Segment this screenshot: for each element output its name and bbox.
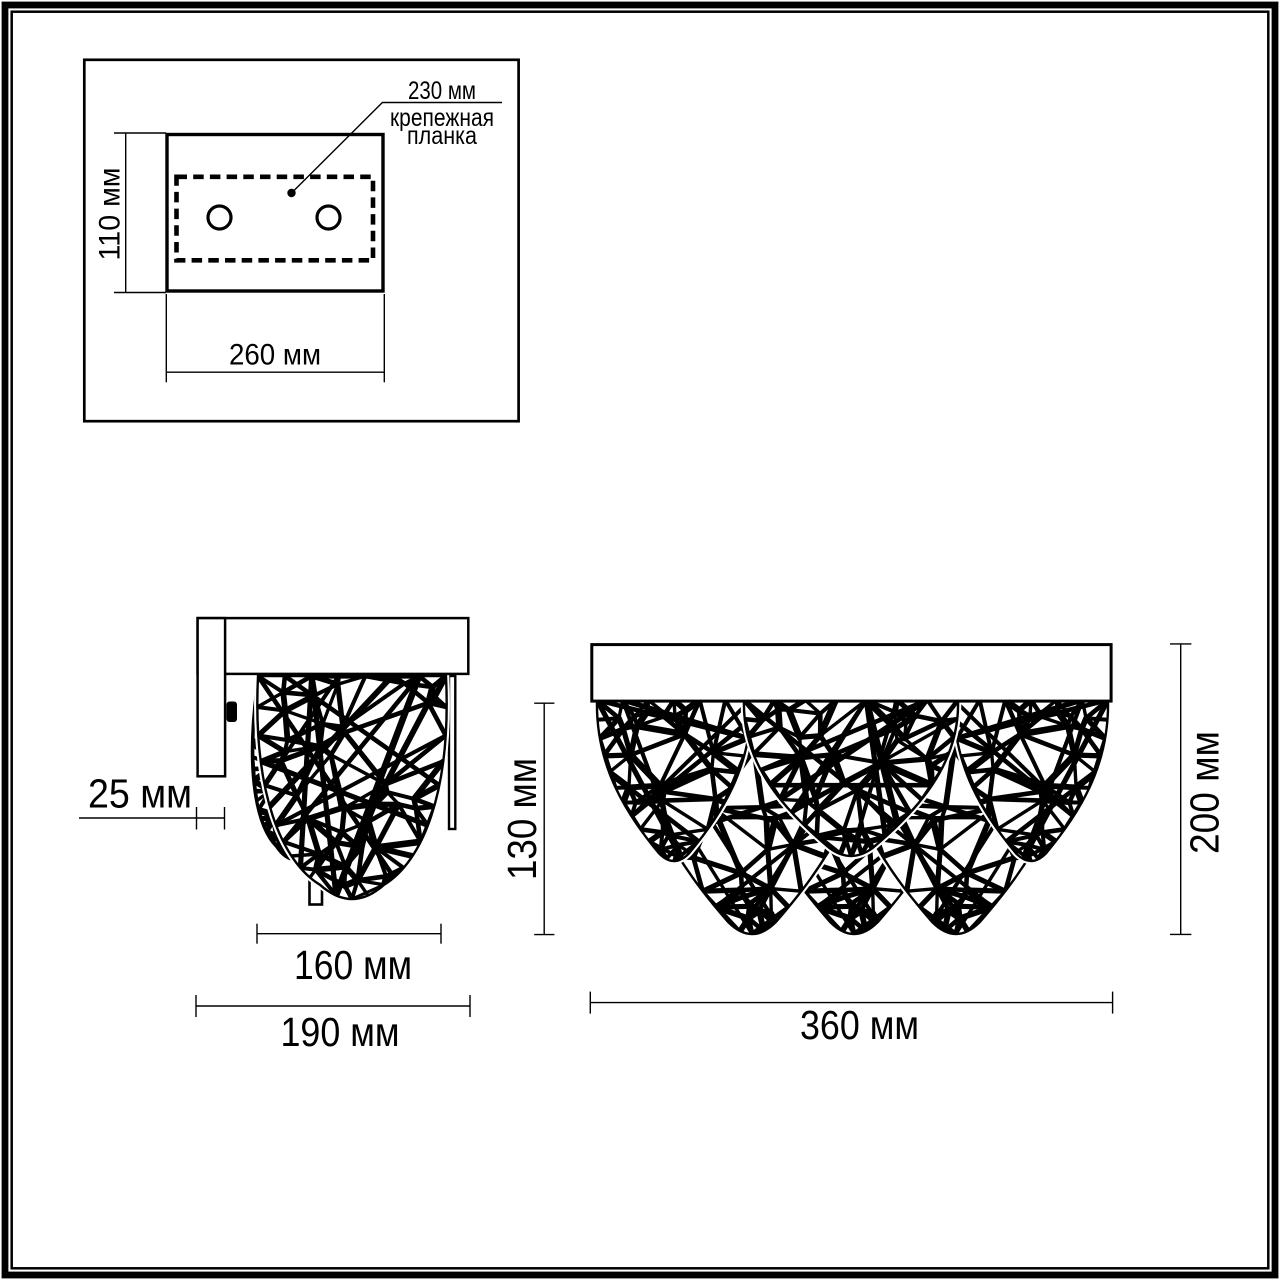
svg-text:планка: планка: [407, 122, 477, 150]
svg-text:230 мм: 230 мм: [408, 77, 476, 105]
svg-text:360 мм: 360 мм: [800, 1002, 919, 1048]
svg-text:110 мм: 110 мм: [94, 168, 127, 261]
svg-text:260 мм: 260 мм: [229, 338, 321, 371]
svg-text:25 мм: 25 мм: [88, 771, 192, 817]
svg-text:190 мм: 190 мм: [281, 1009, 400, 1055]
svg-text:160 мм: 160 мм: [294, 942, 412, 988]
svg-text:200 мм: 200 мм: [1182, 731, 1228, 854]
svg-text:130 мм: 130 мм: [499, 758, 545, 880]
